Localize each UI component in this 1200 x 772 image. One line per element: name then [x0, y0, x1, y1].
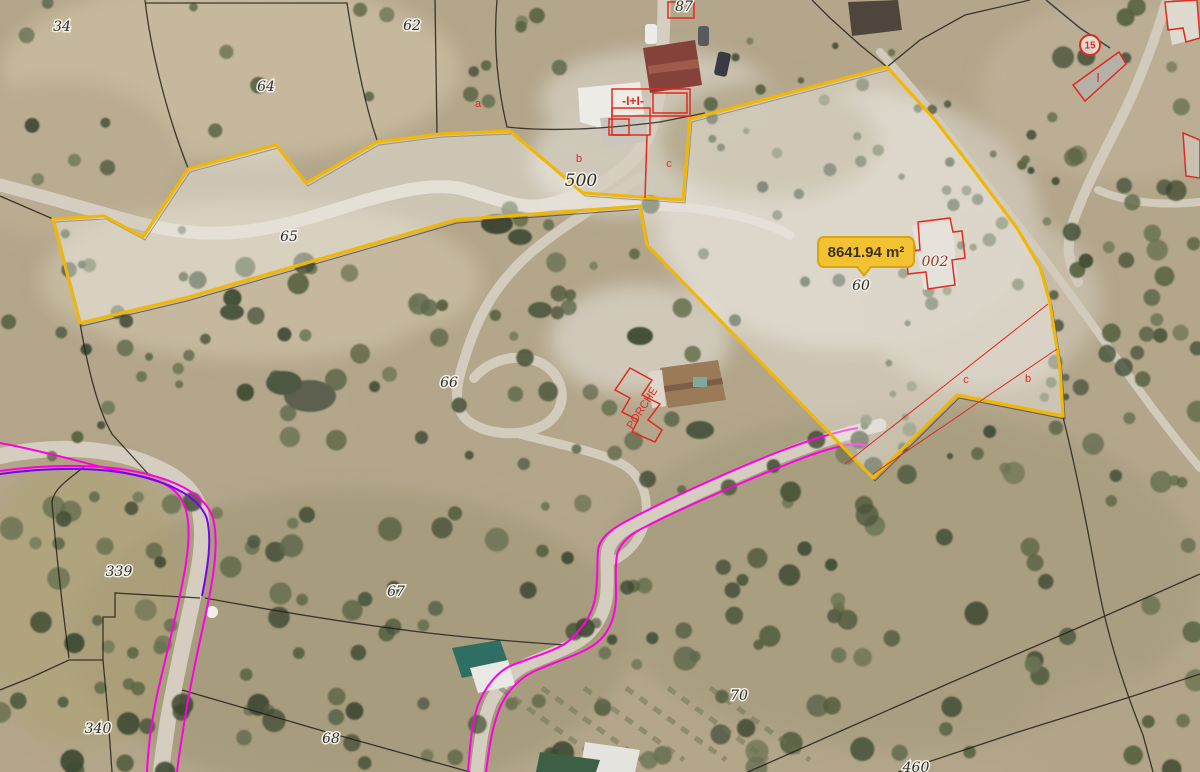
point-markers: 15: [1080, 35, 1100, 55]
parcel-label-67: 67: [387, 584, 405, 600]
parcel-label-65: 65: [280, 229, 298, 245]
parcel-label-62: 62: [403, 18, 421, 34]
annotation-label-b: b: [576, 153, 582, 165]
annotation-label--I+I-: -I+I-: [622, 94, 644, 108]
annotation-label-c: c: [963, 374, 969, 386]
dark-building-top-right: [848, 0, 902, 36]
parcel-label-60: 60: [852, 278, 870, 294]
parcel-label-34: 34: [53, 19, 71, 35]
parcel-label-64: 64: [257, 79, 275, 95]
annotation-label-b: b: [1025, 373, 1031, 385]
parcel-label-66: 66: [440, 375, 458, 391]
van-white: [645, 24, 657, 44]
parcel-label-68: 68: [322, 731, 340, 747]
cadastral-map-viewport[interactable]: 15 abc-I+I-cbIPORCHE002 3464628765500606…: [0, 0, 1200, 772]
parcel-label-460: 460: [902, 760, 930, 772]
marker-label-15: 15: [1084, 41, 1096, 52]
parcel-label-70: 70: [730, 688, 748, 704]
map-canvas[interactable]: 15 abc-I+I-cbIPORCHE002 3464628765500606…: [0, 0, 1200, 772]
area-measurement-badge: 8641.94 m²: [817, 236, 915, 268]
annotation-label-a: a: [475, 98, 482, 110]
car-2: [698, 26, 709, 46]
parcel-label-340: 340: [85, 721, 112, 737]
parcel-label-339: 339: [106, 564, 133, 580]
annotation-label-c: c: [666, 158, 672, 170]
annotation-label-I: I: [1096, 70, 1100, 85]
area-value: 8641.94 m²: [828, 244, 905, 261]
parcel-label-87: 87: [675, 0, 693, 15]
annotation-label-002: 002: [922, 254, 949, 270]
parcel-label-500: 500: [565, 171, 598, 191]
center-house-pool: [693, 377, 707, 387]
